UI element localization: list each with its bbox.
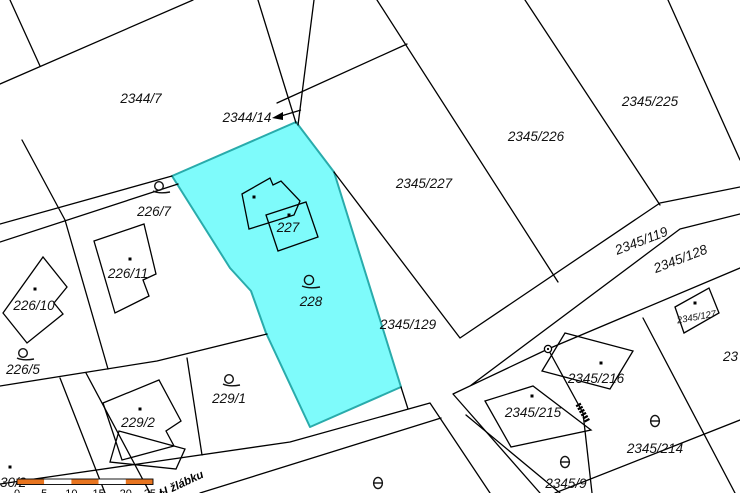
parcel-label-2345-214: 2345/214 xyxy=(626,441,683,456)
parcel-label-2344-14: 2344/14 xyxy=(222,110,272,125)
building-dot xyxy=(34,288,37,291)
scale-tick: 0 xyxy=(14,488,20,493)
scale-bar-segment xyxy=(44,479,71,485)
parcel-label-226-10: 226/10 xyxy=(12,298,55,313)
cadastral-map: 2344/7 2344/14 2345/227 2345/226 2345/22… xyxy=(0,0,740,493)
parcel-label-2345-216: 2345/216 xyxy=(567,371,625,386)
scale-tick: 25 m xyxy=(144,488,168,493)
parcel-label-229-2: 229/2 xyxy=(120,415,155,430)
boundary-point-icon xyxy=(544,345,551,352)
parcel-label-partial-right: 23 xyxy=(722,349,739,364)
parcel-label-2345-129: 2345/129 xyxy=(379,317,437,332)
parcel-label-2345-225: 2345/225 xyxy=(621,94,679,109)
parcel-label-227: 227 xyxy=(276,220,300,235)
parcel-label-2345-9: 2345/9 xyxy=(544,476,587,491)
building-dot xyxy=(531,395,534,398)
parcel-label-228: 228 xyxy=(299,294,323,309)
building-dot xyxy=(288,214,291,217)
building-dot xyxy=(139,408,142,411)
parcel-label-226-7: 226/7 xyxy=(136,204,171,219)
scale-bar-segment xyxy=(17,479,44,485)
scale-bar-segment xyxy=(126,479,153,485)
building-dot xyxy=(253,196,256,199)
building-dot xyxy=(694,302,697,305)
scale-bar-segment xyxy=(71,479,98,485)
scale-tick: 10 xyxy=(65,488,77,493)
parcel-label-2345-227: 2345/227 xyxy=(395,176,453,191)
building-dot xyxy=(129,258,132,261)
scale-bar-segment xyxy=(99,479,126,485)
building-dot xyxy=(9,466,12,469)
scale-tick: 5 xyxy=(41,488,47,493)
parcel-label-2345-215: 2345/215 xyxy=(504,405,562,420)
parcel-label-229-1: 229/1 xyxy=(211,391,246,406)
scale-tick: 20 xyxy=(120,488,132,493)
parcel-label-226-5: 226/5 xyxy=(5,362,40,377)
parcel-label-226-11: 226/11 xyxy=(107,266,148,281)
scale-tick: 15 xyxy=(92,488,104,493)
parcel-label-2344-7: 2344/7 xyxy=(119,91,162,106)
building-dot xyxy=(600,362,603,365)
parcel-label-2345-226: 2345/226 xyxy=(507,129,565,144)
